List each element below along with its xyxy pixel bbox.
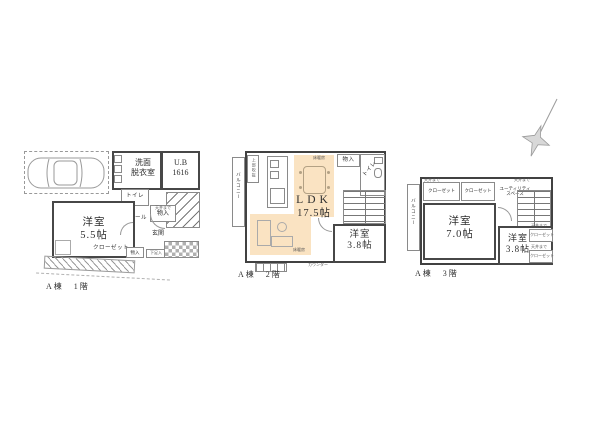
closet2-label: クローゼット <box>462 188 494 193</box>
floor3-caption: A棟 3階 <box>415 269 459 279</box>
western-room-7-0-line1: 洋室 <box>436 216 484 229</box>
closet1-label: クローゼット <box>424 188 459 193</box>
floor3-plan: バルコニー 天井まで クローゼット クローゼット 天井まで ユーティリティ スペ… <box>0 0 600 300</box>
floorplan-sheet: 洗面 脱衣室 U.B 1616 トイレ 天井まで 物入 ホール 玄関 洋室 5.… <box>0 0 600 424</box>
western-room-7-0-label: 洋室 7.0帖 <box>436 216 484 241</box>
balcony-label: バルコニー <box>411 198 416 226</box>
western-room-7-0-line2: 7.0帖 <box>436 229 484 242</box>
closet3-label: クローゼット <box>530 233 552 238</box>
utility-note: 天井まで <box>514 178 530 183</box>
north-arrow-icon <box>520 95 568 160</box>
closet4-label: クローゼット <box>530 254 552 259</box>
stair-rail <box>534 191 535 227</box>
